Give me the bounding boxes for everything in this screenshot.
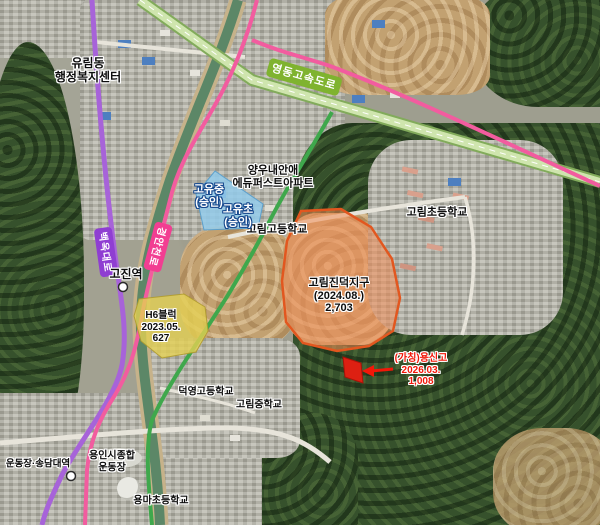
label-line: (2024.08.) [309, 290, 370, 303]
label-gorim-jindeok-district: 고림진덕지구 (2024.08.) 2,703 [309, 277, 370, 315]
zone-yongsin-school-site [343, 357, 363, 383]
label-line: 2,703 [309, 302, 370, 315]
label-goyu-elementary-approved: 고유초 (승인) [223, 203, 253, 228]
arrow-head [362, 365, 374, 377]
label-yongsin-high-school-planned: (가칭)용신고 2026.03. 1,008 [395, 353, 448, 388]
label-line: 운동장 [89, 462, 135, 474]
label-gorim-middle-school: 고림중학교 [236, 399, 282, 411]
label-line: 양우내안애 [233, 164, 314, 177]
label-goyu-middle-approved: 고유중 (승인) [194, 183, 224, 208]
satellite-map: 영동고속도로 백옥대로 경안천로 유림동 행정복지센터 양우내안애 에듀퍼스트아… [0, 0, 600, 525]
label-yongin-sports-complex: 용인시종합 운동장 [89, 451, 135, 474]
label-line: (승인) [194, 196, 224, 209]
label-line: H6블럭 [142, 310, 181, 322]
label-line: (가칭)용신고 [395, 353, 448, 365]
label-line: 2026.03. [395, 364, 448, 376]
label-yangwoo-apartment: 양우내안애 에듀퍼스트아파트 [233, 164, 314, 189]
label-line: 627 [142, 333, 181, 345]
label-line: 고유중 [194, 183, 224, 196]
station-marker-stadium-songdam [67, 472, 76, 481]
label-deokyoung-high-school: 덕영고등학교 [178, 386, 233, 398]
label-h6-block: H6블럭 2023.05. 627 [142, 310, 181, 345]
label-gorim-high-school: 고림고등학교 [247, 224, 308, 237]
label-line: 2023.05. [142, 321, 181, 333]
label-line: 유림동 [55, 57, 121, 71]
label-line: 고유초 [223, 203, 253, 216]
arrow-line [371, 369, 393, 371]
label-line: 에듀퍼스트아파트 [233, 177, 314, 190]
label-line: 고림진덕지구 [309, 277, 370, 290]
station-marker-gojin [119, 283, 128, 292]
label-stadium-songdam-station: 운동장·송담대역 [6, 460, 70, 471]
label-yongma-elementary-school: 용마초등학교 [133, 495, 188, 507]
label-line: 행정복지센터 [55, 71, 121, 85]
label-line: (승인) [223, 216, 253, 229]
label-yurim-community-center: 유림동 행정복지센터 [55, 57, 121, 85]
label-line: 1,008 [395, 376, 448, 388]
label-line: 용인시종합 [89, 451, 135, 463]
label-gojin-station: 고진역 [109, 268, 142, 282]
label-gorim-elementary-school: 고림초등학교 [407, 207, 468, 220]
